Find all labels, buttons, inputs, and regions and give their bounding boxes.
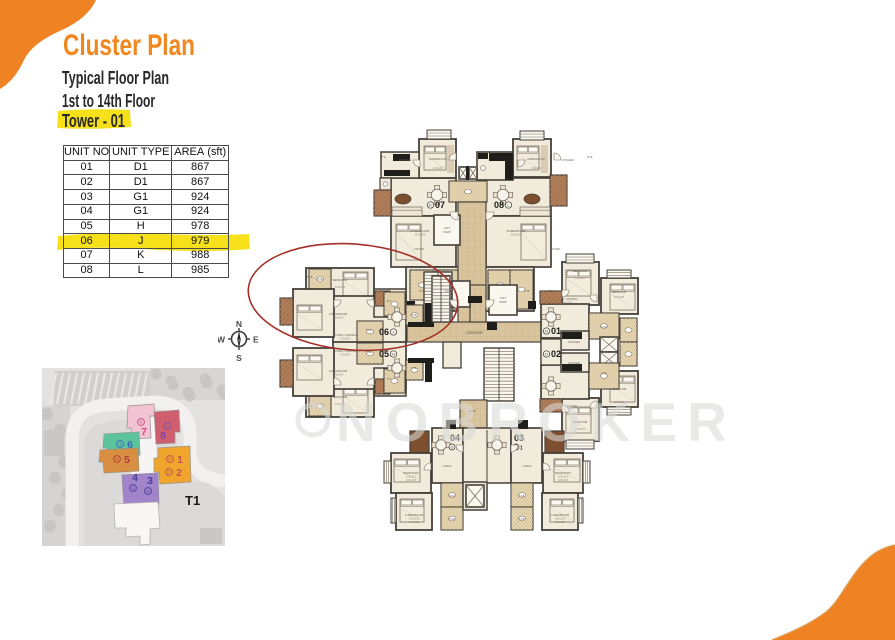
svg-text:10'0x11'0: 10'0x11'0 <box>406 479 417 482</box>
svg-text:NOBROKER: NOBROKER <box>336 391 737 453</box>
svg-text:TOIL: TOIL <box>601 325 608 329</box>
svg-text:KITCHEN: KITCHEN <box>568 361 580 365</box>
svg-text:A.BEDROOM: A.BEDROOM <box>405 513 424 517</box>
svg-text:TOIL: TOIL <box>445 289 452 293</box>
svg-text:FOYER: FOYER <box>550 247 560 251</box>
svg-text:A.BEDROOM: A.BEDROOM <box>329 312 348 316</box>
svg-text:10'0x12'0: 10'0x12'0 <box>555 521 566 524</box>
svg-text:LIVING: LIVING <box>522 464 531 468</box>
svg-text:06: 06 <box>379 327 389 337</box>
svg-text:M.BEDROOM: M.BEDROOM <box>429 157 447 161</box>
svg-text:KITCHEN: KITCHEN <box>568 340 580 344</box>
svg-text:FOYER: FOYER <box>414 247 424 251</box>
svg-text:TOIL: TOIL <box>411 366 418 370</box>
svg-text:10'0x11'0: 10'0x11'0 <box>558 479 569 482</box>
svg-text:L: L <box>507 203 509 207</box>
svg-text:10'0x11'0: 10'0x11'0 <box>558 474 569 478</box>
svg-text:BEDROOM: BEDROOM <box>403 471 419 475</box>
svg-text:10'0x10'6: 10'0x10'6 <box>614 296 625 299</box>
svg-text:BEDROOM: BEDROOM <box>573 269 588 273</box>
svg-text:10'0x11'6: 10'0x11'6 <box>333 372 344 376</box>
svg-text:17'0x10'6: 17'0x10'6 <box>340 336 351 340</box>
svg-text:12'0x10'6: 12'0x10'6 <box>433 167 444 170</box>
svg-text:10'0x11'6: 10'0x11'6 <box>335 286 346 289</box>
svg-text:12'0x10'6: 12'0x10'6 <box>531 167 542 170</box>
svg-text:A.BEDROOM: A.BEDROOM <box>551 513 570 517</box>
svg-text:17'0x10'6: 17'0x10'6 <box>340 352 351 356</box>
svg-text:KIT: KIT <box>387 299 392 303</box>
svg-text:TOIL: TOIL <box>366 328 373 332</box>
svg-text:LIVING / DINING: LIVING / DINING <box>334 333 358 337</box>
svg-text:TOIL: TOIL <box>519 494 526 498</box>
svg-text:01: 01 <box>551 326 561 336</box>
svg-text:KITCHEN: KITCHEN <box>562 158 574 162</box>
svg-text:10'0x11'6: 10'0x11'6 <box>333 315 344 319</box>
svg-text:10'0x11'0: 10'0x11'0 <box>406 474 417 478</box>
svg-text:H: H <box>392 352 395 356</box>
svg-text:TOIL: TOIL <box>419 289 426 293</box>
svg-text:BEDROOM: BEDROOM <box>612 290 627 294</box>
svg-text:08: 08 <box>494 200 504 210</box>
svg-text:UTIL: UTIL <box>587 155 594 159</box>
svg-text:10'0x12'0: 10'0x12'0 <box>555 516 566 520</box>
svg-text:CORRIDOR: CORRIDOR <box>465 331 483 335</box>
svg-text:LIFT: LIFT <box>500 296 506 300</box>
svg-text:LIFT: LIFT <box>444 226 450 230</box>
svg-text:D: D <box>545 329 548 333</box>
svg-text:TOIL: TOIL <box>449 494 456 498</box>
svg-text:KITCHEN: KITCHEN <box>399 158 411 162</box>
svg-text:BEDROOM: BEDROOM <box>555 471 571 475</box>
svg-text:TOIL: TOIL <box>548 289 555 293</box>
svg-text:11'6x10'0: 11'6x10'0 <box>511 232 522 236</box>
svg-text:J: J <box>393 330 395 334</box>
svg-text:TOIL: TOIL <box>307 275 314 279</box>
svg-text:LIVING: LIVING <box>442 464 451 468</box>
svg-text:A.BEDROOM: A.BEDROOM <box>329 369 348 373</box>
svg-text:M.BEDROOM: M.BEDROOM <box>527 157 545 161</box>
svg-text:K: K <box>429 203 432 207</box>
svg-text:BEDROOM: BEDROOM <box>333 278 348 282</box>
svg-text:10'0x12'0: 10'0x12'0 <box>409 521 420 524</box>
svg-text:M.BEDROOM: M.BEDROOM <box>507 229 526 233</box>
svg-text:02: 02 <box>551 349 561 359</box>
svg-text:TOIL: TOIL <box>524 289 531 293</box>
svg-text:TOIL: TOIL <box>449 517 456 521</box>
svg-text:8'0x6'8: 8'0x6'8 <box>499 301 507 304</box>
svg-text:TOIL: TOIL <box>317 277 324 281</box>
svg-text:D: D <box>545 352 548 356</box>
svg-text:TOIL: TOIL <box>601 371 608 375</box>
svg-text:KIT: KIT <box>387 377 392 381</box>
svg-text:11'6x10'0: 11'6x10'0 <box>415 232 426 236</box>
svg-text:TOIL: TOIL <box>411 313 418 317</box>
svg-text:10'0x12'0: 10'0x12'0 <box>409 516 420 520</box>
svg-text:TOIL: TOIL <box>519 517 526 521</box>
svg-text:10'0x11'0: 10'0x11'0 <box>575 277 586 280</box>
svg-text:UTIL: UTIL <box>380 155 387 159</box>
svg-text:07: 07 <box>435 200 445 210</box>
svg-text:M.BEDROOM: M.BEDROOM <box>411 229 430 233</box>
svg-text:8'0x6'8: 8'0x6'8 <box>443 231 451 234</box>
